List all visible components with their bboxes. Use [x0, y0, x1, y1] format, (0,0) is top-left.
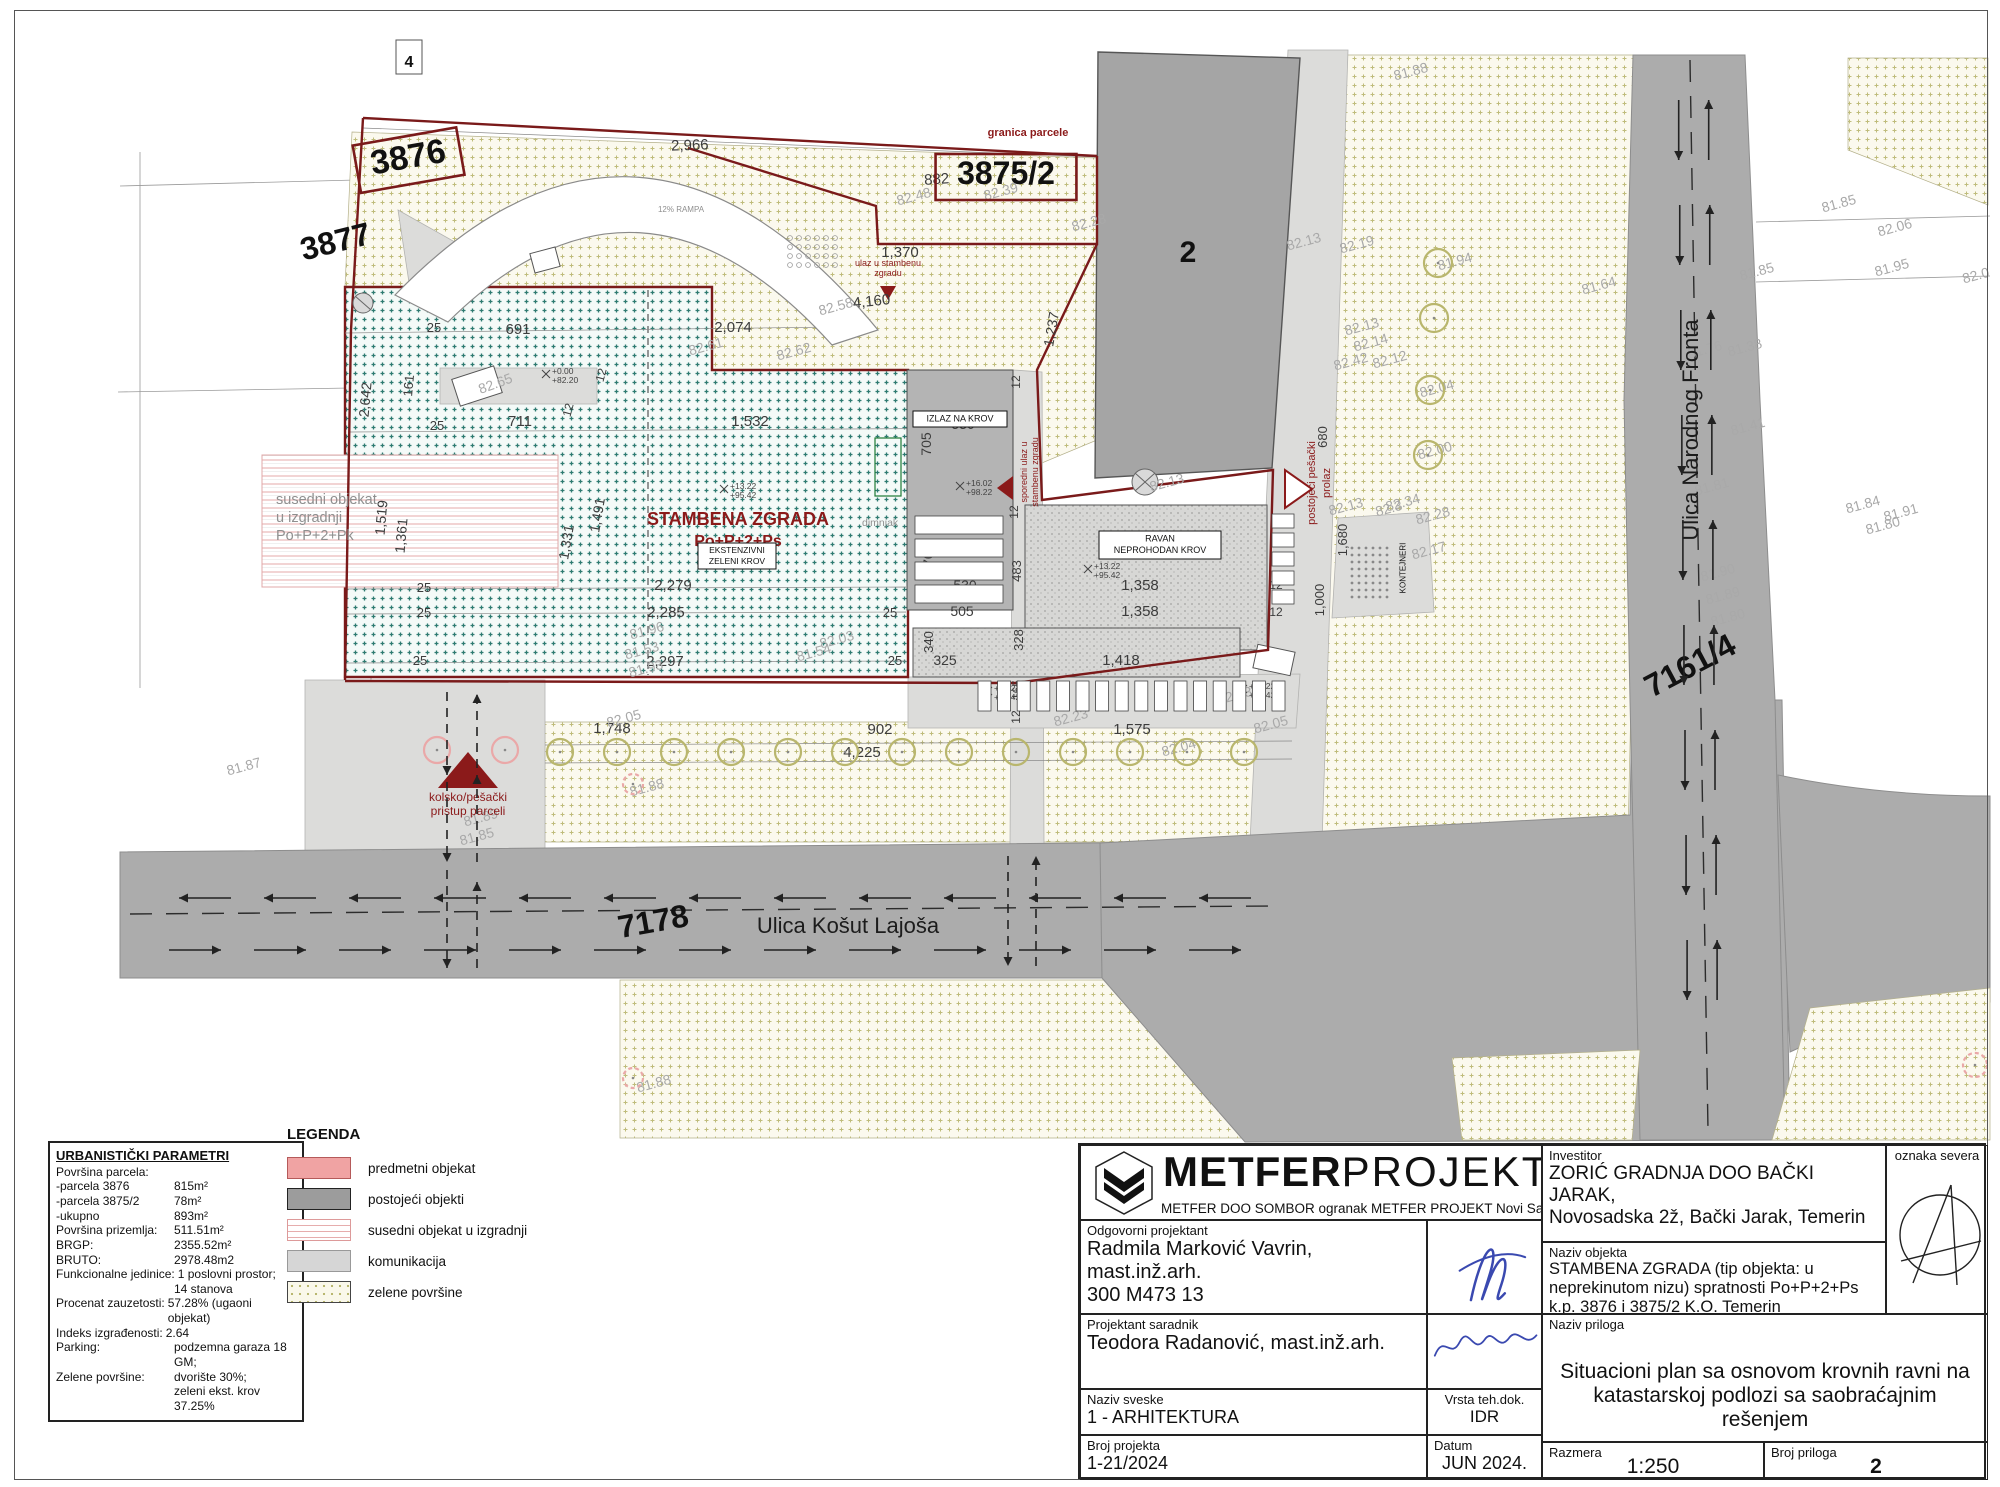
date-cell: Datum JUN 2024. — [1427, 1435, 1542, 1480]
legend-swatch-dark — [287, 1188, 351, 1210]
legend-swatch-lines — [287, 1219, 351, 1241]
investor-cell: Investitor ZORIĆ GRADNJA DOO BAČKI JARAK… — [1542, 1145, 1886, 1242]
object-name-cell: Naziv objekta STAMBENA ZGRADA (tip objek… — [1542, 1242, 1886, 1314]
legend-label: susedni objekat u izgradnji — [368, 1223, 527, 1238]
volume-cell: Naziv sveske 1 - ARHITEKTURA — [1080, 1389, 1427, 1435]
parameter-row: Zelene površine:dvorište 30%; — [56, 1370, 296, 1385]
doc-type-cell: Vrsta teh.dok. IDR — [1427, 1389, 1542, 1435]
legend: LEGENDA predmetni objekatpostojeći objek… — [287, 1126, 567, 1312]
legend-item: postojeći objekti — [287, 1188, 567, 1210]
scale-cell: Razmera 1:250 — [1542, 1442, 1764, 1480]
responsible-designer-cell: Odgovorni projektant Radmila Marković Va… — [1080, 1220, 1427, 1314]
responsible-designer-name: Radmila Marković Vavrin, — [1087, 1238, 1420, 1261]
brand-name: METFERPROJEKT — [1163, 1148, 1542, 1196]
signature-cell-2 — [1427, 1314, 1542, 1389]
parameter-row: Površina parcela: — [56, 1165, 296, 1180]
legend-item: susedni objekat u izgradnji — [287, 1219, 567, 1241]
legend-items: predmetni objekatpostojeći objektisusedn… — [287, 1157, 567, 1303]
brand-bold: METFER — [1163, 1148, 1342, 1195]
parameter-row: BRGP:2355.52m² — [56, 1238, 296, 1253]
investor-name: ZORIĆ GRADNJA DOO BAČKI JARAK, — [1549, 1163, 1879, 1207]
parameter-row: Parking:podzemna garaza 18 GM; — [56, 1340, 296, 1369]
urban-parameters-title: URBANISTIČKI PARAMETRI — [56, 1148, 296, 1164]
cell-label: Projektant saradnik — [1087, 1317, 1420, 1332]
parameter-row: zeleni ekst. krov 37.25% — [56, 1384, 296, 1413]
signature-cell-1 — [1427, 1220, 1542, 1314]
collaborator-name: Teodora Radanović, mast.inž.arh. — [1087, 1332, 1420, 1355]
parameter-row: -ukupno893m² — [56, 1209, 296, 1224]
parameter-row: Indeks izgrađenosti:2.64 — [56, 1326, 296, 1341]
legend-swatch-pink — [287, 1157, 351, 1179]
volume-name: 1 - ARHITEKTURA — [1087, 1407, 1420, 1428]
drawing-sheet: { "colors":{"boundary_red":"#7a1a1a","an… — [0, 0, 2000, 1487]
north-mark-cell: oznaka severa — [1886, 1145, 1988, 1314]
legend-item: komunikacija — [287, 1250, 567, 1272]
legend-swatch-dots — [287, 1281, 351, 1303]
legend-item: zelene površine — [287, 1281, 567, 1303]
attachment-title: Situacioni plan sa osnovom krovnih ravni… — [1549, 1360, 1981, 1384]
legend-label: zelene površine — [368, 1285, 463, 1300]
legend-label: predmetni objekat — [368, 1161, 475, 1176]
north-arrow-icon — [1893, 1163, 1987, 1303]
brand-tagline: METFER DOO SOMBOR ogranak METFER PROJEKT… — [1161, 1201, 1542, 1216]
project-number-cell: Broj projekta 1-21/2024 — [1080, 1435, 1427, 1480]
urban-parameters-box: URBANISTIČKI PARAMETRI Površina parcela:… — [48, 1141, 304, 1422]
metfer-logo-icon — [1093, 1150, 1155, 1216]
legend-title: LEGENDA — [287, 1126, 567, 1143]
parameter-row: 14 stanova — [56, 1282, 296, 1297]
parameter-row: -parcela 3876815m² — [56, 1179, 296, 1194]
title-block: METFERPROJEKT METFER DOO SOMBOR ogranak … — [1078, 1143, 1986, 1479]
date-value: JUN 2024. — [1434, 1453, 1535, 1474]
cell-label: Odgovorni projektant — [1087, 1223, 1420, 1238]
urban-parameters-rows: Površina parcela:-parcela 3876815m²-parc… — [56, 1165, 296, 1414]
parameter-row: BRUTO:2978.48m2 — [56, 1253, 296, 1268]
legend-swatch-light — [287, 1250, 351, 1272]
logo-cell: METFERPROJEKT METFER DOO SOMBOR ogranak … — [1080, 1145, 1542, 1220]
parameter-row: Procenat zauzetosti:57.28% (ugaoni objek… — [56, 1296, 296, 1325]
legend-item: predmetni objekat — [287, 1157, 567, 1179]
parameter-row: Površina prizemlja:511.51m² — [56, 1223, 296, 1238]
doc-type: IDR — [1434, 1407, 1535, 1427]
attachment-number-cell: Broj priloga 2 — [1764, 1442, 1988, 1480]
collaborator-cell: Projektant saradnik Teodora Radanović, m… — [1080, 1314, 1427, 1389]
parameter-row: -parcela 3875/278m² — [56, 1194, 296, 1209]
signature-icon — [1428, 1221, 1541, 1314]
attachment-name-cell: Naziv priloga Situacioni plan sa osnovom… — [1542, 1314, 1988, 1442]
north-mark-label: oznaka severa — [1893, 1148, 1981, 1163]
brand-light: PROJEKT — [1342, 1148, 1542, 1195]
legend-label: komunikacija — [368, 1254, 446, 1269]
project-number: 1-21/2024 — [1087, 1453, 1420, 1474]
object-name: STAMBENA ZGRADA (tip objekta: u — [1549, 1260, 1879, 1279]
signature-icon — [1428, 1315, 1541, 1383]
parameter-row: Funkcionalne jedinice:1 poslovni prostor… — [56, 1267, 296, 1282]
legend-label: postojeći objekti — [368, 1192, 464, 1207]
